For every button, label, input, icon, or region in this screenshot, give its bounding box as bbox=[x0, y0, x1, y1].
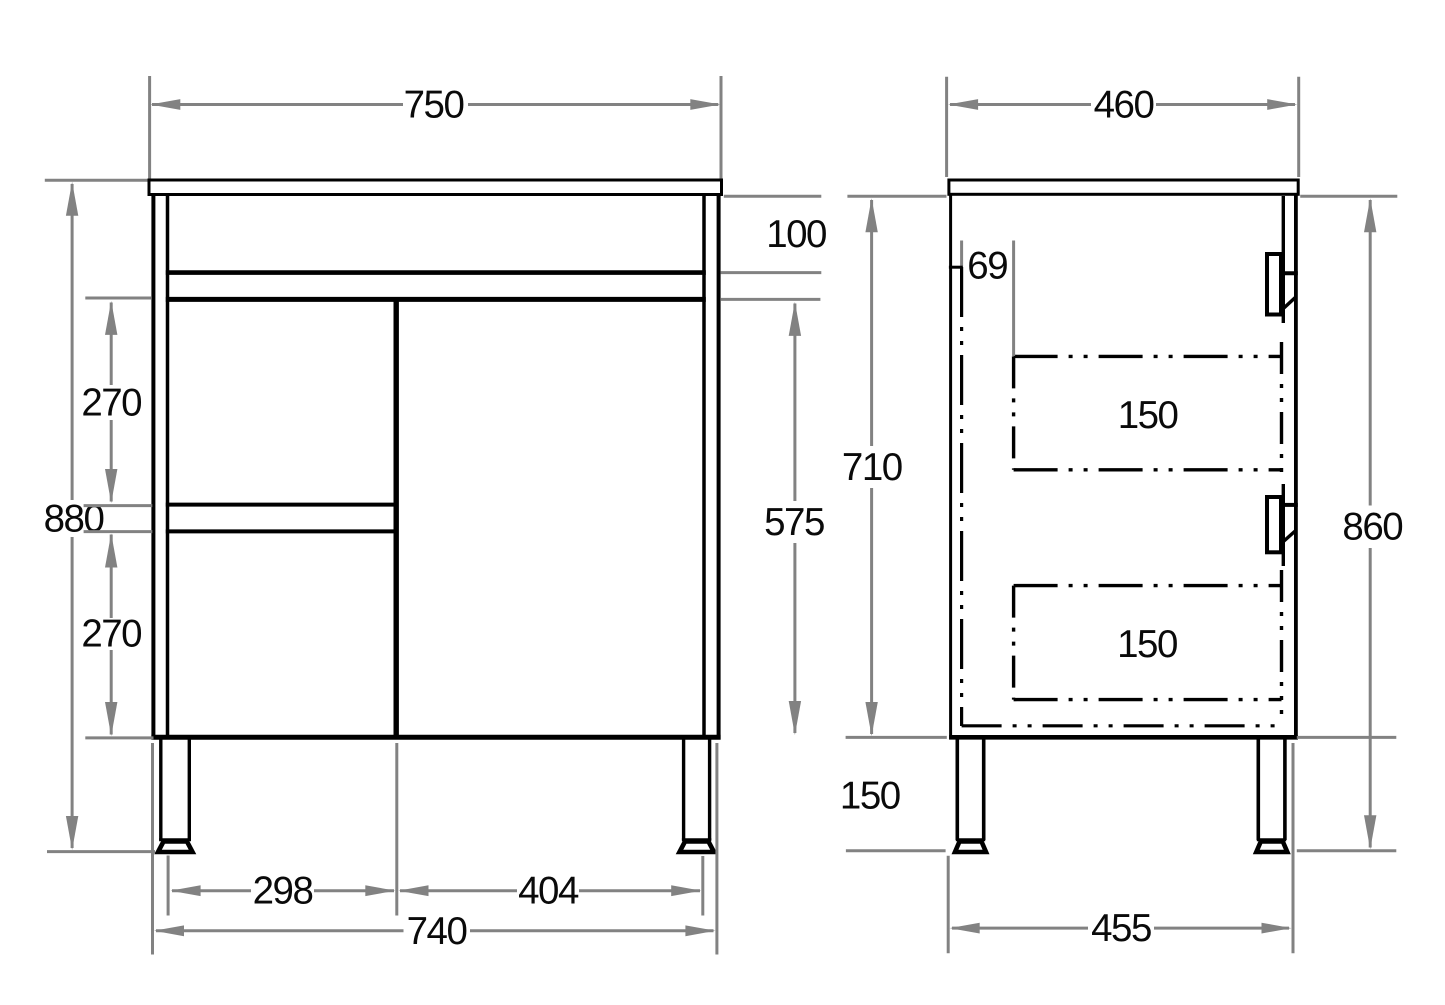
svg-text:298: 298 bbox=[253, 870, 313, 913]
svg-text:270: 270 bbox=[81, 382, 141, 425]
svg-text:150: 150 bbox=[1117, 623, 1177, 666]
svg-text:455: 455 bbox=[1091, 907, 1151, 950]
svg-text:710: 710 bbox=[842, 446, 902, 489]
svg-text:270: 270 bbox=[81, 613, 141, 656]
svg-text:150: 150 bbox=[1118, 394, 1178, 437]
svg-text:404: 404 bbox=[518, 870, 579, 913]
svg-text:740: 740 bbox=[407, 910, 467, 953]
svg-text:880: 880 bbox=[44, 498, 104, 541]
svg-text:460: 460 bbox=[1094, 84, 1154, 127]
svg-text:750: 750 bbox=[404, 84, 464, 127]
svg-text:575: 575 bbox=[764, 501, 824, 544]
svg-text:100: 100 bbox=[766, 213, 826, 256]
svg-text:860: 860 bbox=[1342, 506, 1402, 549]
svg-text:150: 150 bbox=[840, 775, 900, 818]
svg-text:69: 69 bbox=[967, 244, 1007, 287]
